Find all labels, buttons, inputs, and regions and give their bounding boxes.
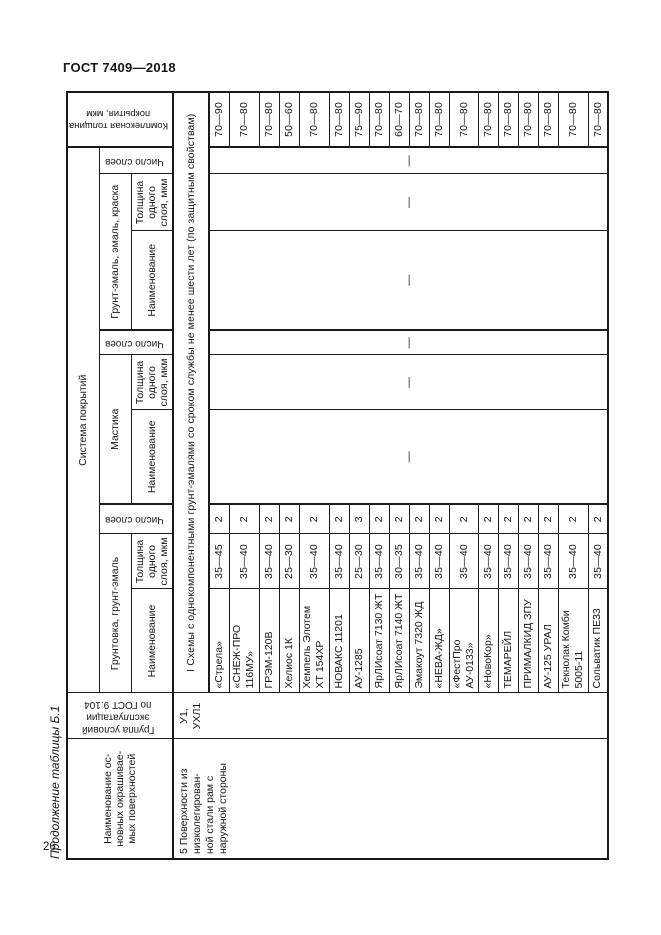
layer-thickness-cell: 35—40	[409, 534, 429, 589]
layer-thickness-cell: 35—40	[498, 534, 518, 589]
layer-thickness-cell: 30—35	[389, 534, 409, 589]
coating-name-cell: Текнолак Комби 5005-11	[558, 589, 588, 693]
coating-name-cell: «ФестПро АУ-0133»	[449, 589, 478, 693]
header-primer-layer-count-text: Число слоев	[105, 513, 164, 526]
rotated-table-block: Продолжение таблицы Б.1 Наименование ос-…	[48, 93, 598, 860]
layer-count-cell: 2	[209, 504, 229, 534]
layer-count-cell: 2	[369, 504, 389, 534]
total-thickness-cell: 70—80	[449, 92, 478, 147]
header-surfaces: Наименование ос- новных окрашивае- мых п…	[67, 739, 173, 859]
total-thickness-cell: 70—80	[329, 92, 349, 147]
layer-count-cell: 2	[299, 504, 329, 534]
header-group-primer: Грунтовка, грунт-эмаль	[99, 534, 131, 693]
coating-name-cell: НОВАКС 11201	[329, 589, 349, 693]
layer-count-cell: 2	[279, 504, 299, 534]
total-thickness-cell: 70—80	[518, 92, 538, 147]
total-thickness-cell: 70—80	[299, 92, 329, 147]
doc-code: ГОСТ 7409—2018	[63, 60, 176, 75]
total-thickness-cell: 70—80	[558, 92, 588, 147]
header-primer-thickness: Толщина одного слоя, мкм	[131, 534, 173, 589]
layer-thickness-cell: 35—40	[478, 534, 498, 589]
layer-count-cell: 2	[478, 504, 498, 534]
total-thickness-cell: 70—80	[429, 92, 449, 147]
layer-thickness-cell: 35—40	[538, 534, 558, 589]
header-enamel-layer-count-text: Число слоев	[105, 154, 164, 167]
total-thickness-cell: 70—80	[409, 92, 429, 147]
total-thickness-cell: 70—80	[588, 92, 608, 147]
total-thickness-cell: 70—80	[259, 92, 279, 147]
total-thickness-cell: 50—60	[279, 92, 299, 147]
layer-count-cell: 2	[498, 504, 518, 534]
header-system: Система покрытий	[67, 147, 99, 693]
coating-name-cell: Хелиос 1К	[279, 589, 299, 693]
layer-thickness-cell: 35—45	[209, 534, 229, 589]
layer-thickness-cell: 35—40	[369, 534, 389, 589]
header-primer-layer-count: Число слоев	[99, 504, 173, 534]
layer-thickness-cell: 25—30	[279, 534, 299, 589]
enamel-layers-dash-cell: —	[209, 147, 608, 174]
header-mastic-name: Наименование	[131, 410, 173, 504]
layer-thickness-cell: 35—40	[329, 534, 349, 589]
coating-name-cell: Хемпель Элотем ХТ 154ХР	[299, 589, 329, 693]
layer-count-cell: 2	[259, 504, 279, 534]
coating-name-cell: ТЕМАРЕЙЛ	[498, 589, 518, 693]
page-number: 26	[43, 841, 56, 853]
layer-thickness-cell: 35—40	[588, 534, 608, 589]
coating-name-cell: «НовоКор»	[478, 589, 498, 693]
mastic-thickness-dash-cell: —	[209, 355, 608, 410]
enamel-thickness-dash-cell: —	[209, 174, 608, 231]
service-group-cell: У1, УХЛ1	[173, 693, 608, 739]
coating-name-cell: «НЕВА-ЖД»	[429, 589, 449, 693]
layer-count-cell: 2	[409, 504, 429, 534]
header-mastic-thickness: Толщина одного слоя, мкм	[131, 355, 173, 410]
layer-count-cell: 2	[229, 504, 259, 534]
total-thickness-cell: 60—70	[389, 92, 409, 147]
header-service-group: Группа условий эксплуатации по ГОСТ 9.10…	[67, 693, 173, 739]
layer-thickness-cell: 35—40	[429, 534, 449, 589]
layer-thickness-cell: 35—40	[259, 534, 279, 589]
header-group-mastic: Мастика	[99, 355, 131, 504]
layer-count-cell: 2	[588, 504, 608, 534]
header-primer-name: Наименование	[131, 589, 173, 693]
header-mastic-layer-count-text: Число слоев	[105, 337, 164, 350]
layer-thickness-cell: 25—30	[349, 534, 369, 589]
total-thickness-cell: 70—80	[478, 92, 498, 147]
layer-thickness-cell: 35—40	[518, 534, 538, 589]
coating-name-cell: Сольватик ПЕ33	[588, 589, 608, 693]
surface-group-cell: 5 Поверхности из низколегирован- ной ста…	[173, 739, 608, 859]
coating-name-cell: ЯрЛИсоат 7140 ЖТ	[389, 589, 409, 693]
coating-name-cell: Эмакоут 7320 ЖД	[409, 589, 429, 693]
header-enamel-thickness: Толщина одного слоя, мкм	[131, 174, 173, 231]
layer-thickness-cell: 35—40	[299, 534, 329, 589]
header-total-thickness: Комплексная толщина покрытия, мкм	[67, 92, 173, 147]
layer-count-cell: 2	[429, 504, 449, 534]
header-enamel-name: Наименование	[131, 231, 173, 330]
total-thickness-cell: 70—80	[229, 92, 259, 147]
header-enamel-layer-count: Число слоев	[99, 147, 173, 174]
layer-count-cell: 2	[558, 504, 588, 534]
total-thickness-cell: 70—80	[498, 92, 518, 147]
total-thickness-cell: 70—90	[209, 92, 229, 147]
coating-name-cell: ГРЭМ-120В	[259, 589, 279, 693]
layer-count-cell: 2	[389, 504, 409, 534]
total-thickness-cell: 70—80	[538, 92, 558, 147]
header-total-thickness-text: Комплексная толщина покрытия, мкм	[69, 107, 168, 131]
coating-name-cell: ПРИМАЛКИД ЗПУ	[518, 589, 538, 693]
coating-name-cell: АУ-1285	[349, 589, 369, 693]
mastic-layers-dash-cell: —	[209, 330, 608, 355]
coating-name-cell: ЯрЛИсоат 7130 ЖТ	[369, 589, 389, 693]
coating-name-cell: АУ-125 УРАЛ	[538, 589, 558, 693]
header-group-enamel: Грунт-эмаль, эмаль, краска	[99, 174, 131, 330]
layer-count-cell: 2	[329, 504, 349, 534]
layer-count-cell: 2	[449, 504, 478, 534]
layer-thickness-cell: 35—40	[229, 534, 259, 589]
layer-thickness-cell: 35—40	[558, 534, 588, 589]
table-caption: Продолжение таблицы Б.1	[48, 93, 63, 859]
header-service-group-text: Группа условий эксплуатации по ГОСТ 9.10…	[82, 697, 154, 735]
header-mastic-layer-count: Число слоев	[99, 330, 173, 355]
coating-name-cell: «Стрела»	[209, 589, 229, 693]
coating-systems-table: Наименование ос- новных окрашивае- мых п…	[66, 91, 609, 860]
total-thickness-cell: 75—90	[349, 92, 369, 147]
section-row-label: I Схемы с однокомпонентными грунт-эмалям…	[173, 92, 209, 693]
layer-count-cell: 2	[538, 504, 558, 534]
layer-thickness-cell: 35—40	[449, 534, 478, 589]
coating-name-cell: «СНЕЖ-ПРО 116МУ»	[229, 589, 259, 693]
mastic-name-dash-cell: —	[209, 410, 608, 504]
layer-count-cell: 2	[518, 504, 538, 534]
total-thickness-cell: 70—80	[369, 92, 389, 147]
layer-count-cell: 3	[349, 504, 369, 534]
enamel-name-dash-cell: —	[209, 231, 608, 330]
